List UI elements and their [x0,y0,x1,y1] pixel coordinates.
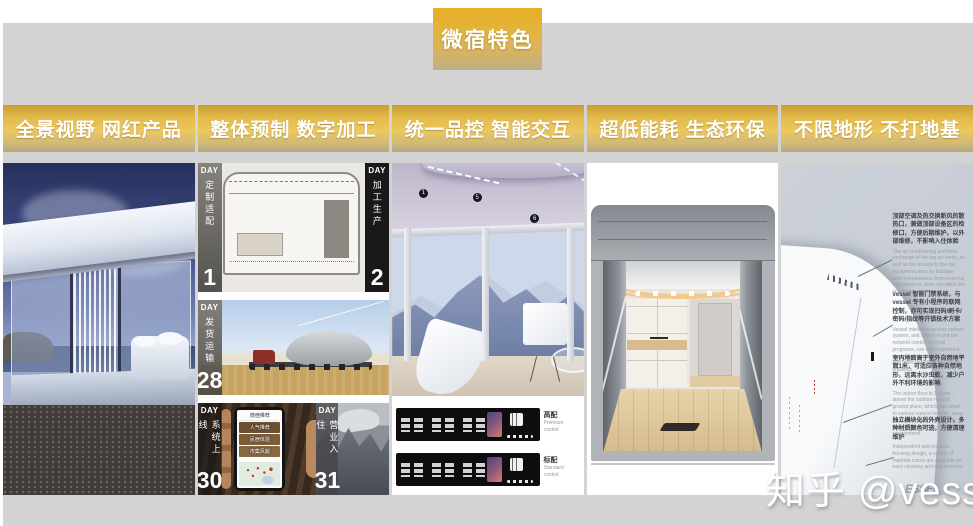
column-header-label: 全景视野 网红产品 [16,115,182,142]
image-capsule-technical-drawing: 顶部空调及热交换新风的散热口，兼做顶部设备区的检修口，方便后期维护，以外部维修，… [781,163,973,495]
timeline-banner-day30: DAY 系统上线 30 [198,403,222,495]
column-header-label: 超低能耗 生态环保 [599,115,765,142]
panel-button-cluster [432,416,454,432]
wood-counter [627,340,687,350]
panel-caption-premium: 高配 Premium control [544,410,582,433]
callout-circle: 1 [419,189,428,198]
window-mullion [404,228,411,361]
ceiling [392,163,584,233]
timeline-banner-day1: DAY 定制适配 1 [198,163,222,292]
fingers [221,409,231,490]
panel-knob-row [507,480,533,483]
control-panel-standard [396,453,540,486]
capsule-shell [591,205,775,461]
panel-screen [487,412,503,437]
trailer-wheels [249,364,372,370]
feature-column-prefab: 整体预制 数字加工 DAY 定制适配 1 [198,105,390,495]
callout-number: 1 [422,190,425,196]
roof-truss-sketch [229,181,355,194]
callout-number: 5 [475,195,478,201]
window-mullion [567,228,574,361]
floor-mat [660,423,701,431]
column-header-panoramic: 全景视野 网红产品 [3,105,195,152]
timeline-day1-2-section: DAY 定制适配 1 DAY 加工生产 2 [198,163,390,292]
app-tile: 民宿体验 [239,434,280,445]
bed-sketch [237,233,284,257]
contrail [299,301,384,326]
callout-circle: 5 [473,193,482,202]
day-number: 1 [203,264,216,291]
panel-caption-zh: 高配 [544,410,582,420]
column-header-terrain: 不限地形 不打地基 [781,105,973,152]
annotation-zh: 顶部空调及热交换新风的散热口，兼做顶部设备区的检修口，方便后期维护，以外部维修，… [892,213,965,247]
app-tile: 市集风貌 [239,446,280,457]
column-header-prefab: 整体预制 数字加工 [198,105,390,152]
panel-button-cluster [463,416,485,432]
annotation-en: The air conditioning and heat exchange o… [892,249,965,296]
capsule-on-rocks-photo: DAY 营业入住 31 [316,403,389,495]
panel-thermostat-display [510,413,523,426]
panel-knob-row [507,435,533,438]
panel-caption-standard: 标配 Standard control [544,455,582,478]
panel-caption-zh: 标配 [544,455,582,465]
control-panel-premium [396,408,540,441]
phone: 微宿推荐 人气推荐 民宿体验 市集风貌 [234,407,285,492]
cabinet-handle [650,337,668,339]
day-label: 营业入住 [314,420,340,467]
ground-line [591,463,775,465]
pillow [134,336,156,347]
day-label: 系统上线 [198,420,223,467]
truck-cab [253,350,275,364]
timeline-banner-day31: DAY 营业入住 31 [316,403,338,495]
app-tile-label: 民宿体验 [239,434,280,445]
panel-thermostat-display [510,458,523,471]
column-header-label: 统一品控 智能交互 [405,115,571,142]
callout-number: 6 [533,216,536,222]
annotation-zh: 独立模块化的外壳设计，多种材质颜色可选，方便清理维护 [892,417,965,442]
dimension-red-dash [814,379,815,394]
day-number: 2 [371,264,384,291]
ceiling-spotlights [635,291,730,296]
mountain-interior-photo: 1 5 6 [392,163,584,396]
column-header-label: 不限地形 不打地基 [794,115,960,142]
panel-button-cluster [432,461,454,477]
slide-title: 微宿特色 [442,24,534,54]
panel-button-cluster [463,461,485,477]
door-lock [871,352,874,361]
panel-button-cluster [401,461,423,477]
app-tile: 人气推荐 [239,422,280,433]
timeline-banner-day28: DAY 发货运输 28 [198,300,222,395]
feature-columns: 全景视野 网红产品 [3,105,973,495]
feature-column-quality: 统一品控 智能交互 1 5 6 [392,105,584,495]
day-label: 定制适配 [203,180,216,264]
image-interior-and-panels: 1 5 6 [392,163,584,495]
app-tile-label: 人气推荐 [239,422,280,433]
wood-floor [603,389,761,451]
timeline-day28-section: DAY 发货运输 28 [198,300,390,395]
day-label: 加工生产 [371,180,384,264]
day-number: 28 [198,367,223,394]
app-tile-label: 市集风貌 [239,446,280,457]
annotation-zh: 室内地面高于室外自然地平面1米，可适应各种自然地形，远离水沙虫蚁，减少户外不利环… [892,355,965,389]
timeline-day30-31-section: 微宿推荐 人气推荐 民宿体验 市集风貌 [198,403,390,495]
capsule-top-arch [591,205,775,261]
app-map [239,462,280,486]
cabin-ceiling [603,261,761,289]
window-mullion [482,228,489,361]
door [698,303,731,376]
day-number: 31 [315,467,341,494]
wardrobe-sketch [324,200,349,259]
capsule-hint [335,405,380,433]
pebble-beach [3,405,195,495]
white-cabinets [627,299,687,387]
dimension-mark [799,402,800,432]
cabin-cutaway-sketch [223,172,361,275]
side-chair [523,303,567,345]
panel-caption-en: control [544,472,582,479]
slide-title-badge: 微宿特色 [433,8,542,70]
wall-light-line [603,297,627,401]
feature-column-eco: 超低能耗 生态环保 [587,105,779,495]
panel-caption-en: control [544,427,582,434]
panel-screen [487,457,503,482]
annotation-roof-vent: 顶部空调及热交换新风的散热口，兼做顶部设备区的检修口，方便后期维护，以外部维修，… [892,213,965,296]
capsule-on-trailer [286,331,372,365]
day-word: DAY [201,406,219,415]
hallway [690,299,739,387]
hall-floor [690,376,739,387]
image-capsule-interior-render [587,163,779,495]
column-header-label: 整体预制 数字加工 [210,115,376,142]
feature-column-terrain: 不限地形 不打地基 顶部空调及热交换新风的散热口，兼做顶部设备区的检修口，方便后… [781,105,973,495]
timeline-banner-day2: DAY 加工生产 2 [365,163,389,292]
feature-column-panoramic: 全景视野 网红产品 [3,105,195,495]
zhihu-watermark: 知乎 @vessel [766,460,973,516]
day-word: DAY [201,303,219,312]
app-title: 微宿推荐 [237,410,282,421]
panel-button-cluster [401,416,423,432]
day-label: 发货运输 [203,317,216,367]
dimension-mark [789,395,790,429]
image-beach-glass-cabin [3,163,195,495]
column-header-eco: 超低能耗 生态环保 [587,105,779,152]
cabin-interior [603,261,761,451]
shell-seam [598,239,767,240]
image-production-timeline: DAY 定制适配 1 DAY 加工生产 2 [198,163,390,495]
day-word: DAY [368,166,386,175]
day-word: DAY [319,406,337,415]
column-header-quality: 统一品控 智能交互 [392,105,584,152]
day-word: DAY [201,166,219,175]
phone-screen: 微宿推荐 人气推荐 民宿体验 市集风貌 [237,410,282,489]
annotation-zh: vessel 智能门禁系统，与 vessel 专有小程序的联网控制，亦可实现扫码… [892,291,965,325]
floor-line-sketch [229,261,355,262]
shell-seam [598,221,767,222]
slide: 微宿特色 全景视野 网红产品 [0,0,973,526]
phone-in-hand-photo: 微宿推荐 人气推荐 民宿体验 市集风貌 [198,403,317,495]
day-number: 30 [198,467,223,494]
